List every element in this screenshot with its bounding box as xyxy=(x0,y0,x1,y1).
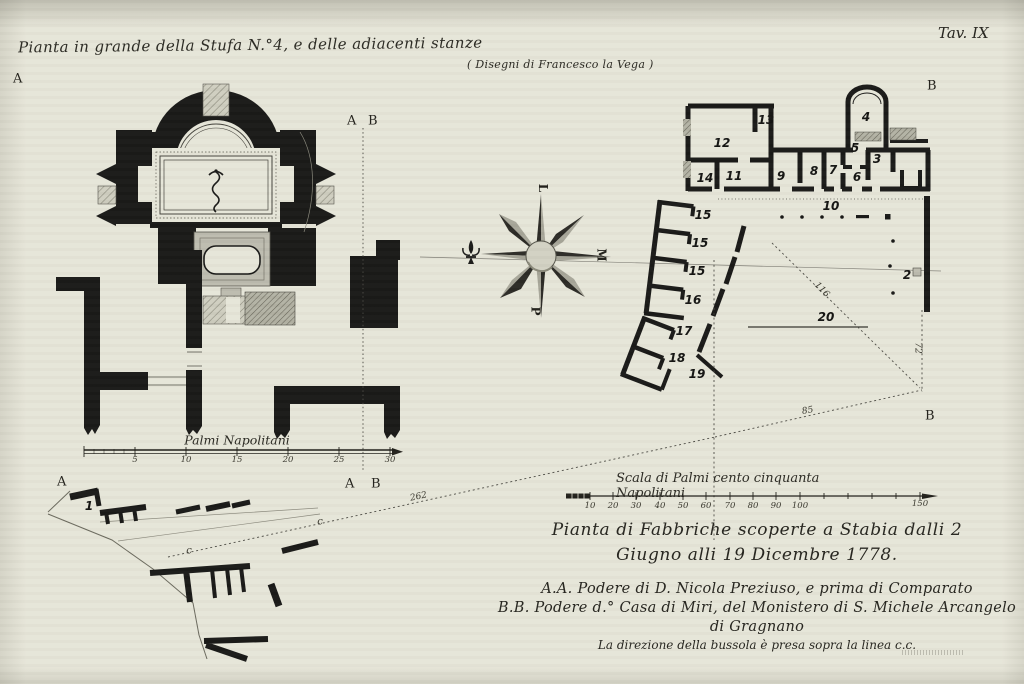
scale-right-tick: 100 xyxy=(792,501,808,511)
compass-letter-west: P xyxy=(529,306,543,315)
caption-key-bb: B.B. Podere d.° Casa di Miri, del Monist… xyxy=(497,600,1017,616)
line-c-mark-left: c xyxy=(186,546,192,557)
engraver-signature xyxy=(902,650,964,655)
room-label-15b: 15 xyxy=(692,236,709,250)
fragment-plan-drawing xyxy=(48,489,320,659)
room-label-19: 19 xyxy=(689,367,706,381)
scale-right-tick: 60 xyxy=(701,501,712,511)
scale-right-tick: 20 xyxy=(608,501,619,511)
section-label-ab-top-a: A xyxy=(347,114,357,129)
stufa-plan-drawing xyxy=(56,84,400,472)
section-label-ab-top-b: B xyxy=(368,114,378,129)
scale-left-tick: 25 xyxy=(334,455,345,465)
room-label-9: 9 xyxy=(777,169,785,183)
caption-title-line1: Pianta di Fabbriche scoperte a Stabia da… xyxy=(497,520,1017,540)
section-label-a-top: A xyxy=(13,72,23,87)
scale-right-tick: 40 xyxy=(655,501,666,511)
section-label-ab-bottom-a: A xyxy=(345,477,355,492)
draughtsman-credit: ( Disegni di Francesco la Vega ) xyxy=(467,58,654,71)
room-label-15a: 15 xyxy=(695,208,712,222)
room-label-10: 10 xyxy=(823,199,840,213)
room-label-14: 14 xyxy=(697,171,714,185)
scale-left-tick: 30 xyxy=(385,455,396,465)
scale-right-tick: 50 xyxy=(678,501,689,511)
room-label-2: 2 xyxy=(903,268,911,282)
room-label-1: 1 xyxy=(85,499,93,513)
room-label-16: 16 xyxy=(685,293,702,307)
room-label-17: 17 xyxy=(676,324,693,338)
fleur-de-lis-icon xyxy=(463,240,479,264)
room-label-13: 13 xyxy=(758,113,775,127)
caption-block: Pianta di Fabbriche scoperte a Stabia da… xyxy=(497,520,1017,652)
room-label-5: 5 xyxy=(851,141,859,155)
scale-left-tick: 20 xyxy=(283,455,294,465)
compass-letter-east: L xyxy=(536,184,550,192)
room-label-11: 11 xyxy=(726,169,743,183)
room-label-15c: 15 xyxy=(689,264,706,278)
room-label-3: 3 xyxy=(873,152,881,166)
room-label-12: 12 xyxy=(714,136,731,150)
section-label-b-top: B xyxy=(927,79,937,94)
scale-left-tick: 5 xyxy=(132,455,137,465)
site-plan-drawing xyxy=(621,87,930,390)
scale-left-label: Palmi Napolitani xyxy=(184,433,290,448)
scale-left-tick: 10 xyxy=(181,455,192,465)
scale-right-tick: 70 xyxy=(725,501,736,511)
room-label-20: 20 xyxy=(818,310,835,324)
scale-left-tick: 15 xyxy=(232,455,243,465)
scale-right-tick: 10 xyxy=(585,501,596,511)
section-label-ab-bottom-b: B xyxy=(371,477,381,492)
engraved-plate: Pianta in grande della Stufa N.°4, e del… xyxy=(0,0,1024,684)
caption-title-line2: Giugno alli 19 Dicembre 1778. xyxy=(497,545,1017,565)
scale-right-label: Scala di Palmi cento cinquanta Napolitan… xyxy=(616,471,888,501)
caption-key-aa: A.A. Podere di D. Nicola Preziuso, e pri… xyxy=(497,581,1017,597)
room-label-6: 6 xyxy=(853,170,861,184)
room-label-8: 8 xyxy=(810,164,818,178)
caption-key-bb2: di Gragnano xyxy=(497,619,1017,635)
room-label-18: 18 xyxy=(669,351,686,365)
measure-85: 85 xyxy=(801,405,814,417)
line-c-mark-right: c xyxy=(317,517,323,528)
section-label-b-bottom: B xyxy=(925,409,935,424)
scale-right-tick: 80 xyxy=(748,501,759,511)
plate-number: Tav. IX xyxy=(938,24,989,42)
room-label-4: 4 xyxy=(862,110,870,124)
room-label-7: 7 xyxy=(829,163,837,177)
scale-right-tick: 150 xyxy=(912,499,928,509)
scale-right-tick: 30 xyxy=(631,501,642,511)
scale-right-tick: 90 xyxy=(771,501,782,511)
measure-72: 72 xyxy=(913,342,923,353)
compass-letter-south: M xyxy=(595,248,609,261)
section-label-a-fragment: A xyxy=(57,475,67,490)
